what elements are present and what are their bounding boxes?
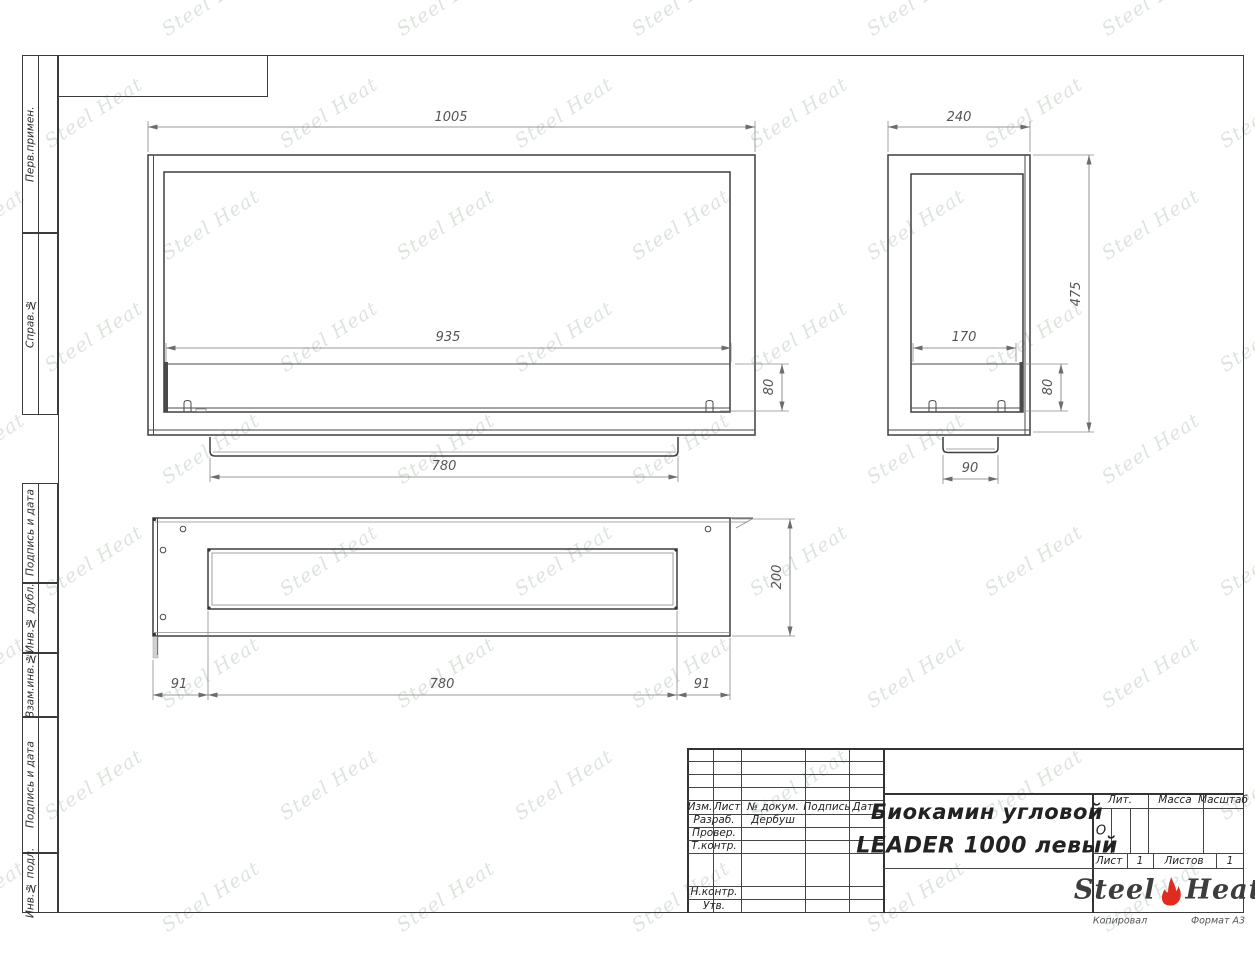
- drawing-title-line1: Биокамин угловой: [871, 800, 1103, 824]
- logo-steel-text: Steel: [1074, 875, 1156, 906]
- mount-hole: [160, 614, 166, 620]
- dim-side-depth: 240: [947, 110, 972, 125]
- tb-tcontrol-label: Т.контр.: [691, 840, 737, 852]
- top-left-stamp-box: [58, 55, 268, 97]
- tb-col-podpis: Подпись: [803, 801, 850, 813]
- tb-col-izm: Изм.: [688, 801, 713, 813]
- side-strip-label: Инв.№ подл.: [23, 854, 38, 912]
- dim-side-opening-depth: 170: [952, 330, 977, 345]
- side-strip-label: Справ.№: [23, 234, 38, 414]
- tb-sheet-label: Лист: [1096, 855, 1123, 867]
- side-strip-cell-inv-dubl: Инв.№ дубл.: [22, 583, 58, 653]
- dim-top-slot-width: 780: [430, 677, 455, 692]
- flame-icon: [1157, 875, 1183, 905]
- top-view: [153, 518, 753, 658]
- top-left-lip: [153, 636, 158, 658]
- dim-top-margin-right: 91: [694, 677, 711, 692]
- dim-front-width: 1005: [434, 110, 467, 125]
- side-strip-cell-inv-podl: Инв.№ подл.: [22, 853, 58, 913]
- side-strip-cell-sprav-no: Справ.№: [22, 233, 58, 415]
- tb-col-list: Лист: [714, 801, 741, 813]
- side-strip-cell-podpis-data-1: Подпись и дата: [22, 483, 58, 583]
- tb-scale-label: Масштаб: [1198, 794, 1248, 806]
- dim-side-burner-height: 80: [1041, 379, 1056, 396]
- dim-front-opening: 935: [436, 330, 461, 345]
- burner-slot: [208, 549, 677, 609]
- dim-top-depth: 200: [770, 565, 785, 590]
- tb-developer-name: Дербуш: [751, 814, 795, 826]
- side-strip-cell-podpis-data-2: Подпись и дата: [22, 717, 58, 853]
- side-front-glass: [1020, 362, 1024, 412]
- burner-clip-right: [706, 401, 713, 413]
- front-tray: [210, 437, 678, 456]
- side-clip-right: [998, 401, 1005, 413]
- side-strip-label: Подпись и дата: [23, 484, 38, 582]
- side-strip-label: Подпись и дата: [23, 718, 38, 852]
- format-note: Формат А3: [1191, 916, 1245, 927]
- dim-front-tray-width: 780: [432, 459, 457, 474]
- mount-hole: [705, 526, 711, 532]
- side-strip-cell-vzam-inv: Взам.инв.№: [22, 653, 58, 717]
- drawing-title-line2: LEADER 1000 левый: [856, 834, 1118, 859]
- logo-heat-text: Heat: [1185, 875, 1255, 906]
- tb-ncontrol-label: Н.контр.: [691, 886, 738, 898]
- side-foot: [943, 437, 998, 453]
- company-logo: Steel Heat: [1074, 875, 1255, 906]
- front-view-dimensions: 1005 935 80 780: [148, 110, 789, 482]
- tb-approver-label: Утв.: [703, 900, 725, 912]
- tb-sheet-value: 1: [1137, 855, 1144, 867]
- side-strip-label: Взам.инв.№: [23, 654, 38, 716]
- tb-mass-label: Масса: [1158, 794, 1191, 806]
- dim-side-foot-width: 90: [962, 461, 979, 476]
- side-strip-label: Перв.примен.: [23, 56, 38, 232]
- side-view: [888, 155, 1030, 453]
- tb-sheets-label: Листов: [1164, 855, 1203, 867]
- front-left-glass: [165, 362, 169, 412]
- copy-note: Копировал: [1093, 916, 1147, 927]
- tb-checker-label: Провер.: [692, 827, 736, 839]
- mount-hole: [160, 547, 166, 553]
- dim-side-height: 475: [1069, 282, 1084, 307]
- side-strip-label: Инв.№ дубл.: [23, 584, 38, 652]
- drawing-sheet: Steel HeatSteel HeatSteel HeatSteel Heat…: [0, 0, 1255, 970]
- side-strip-cell-perv-primen: Перв.примен.: [22, 55, 58, 233]
- tb-lit-label: Лит.: [1108, 794, 1132, 806]
- tb-col-ndokum: № докум.: [747, 801, 799, 813]
- tb-sheets-value: 1: [1227, 855, 1234, 867]
- side-view-dimensions: 240 475 170 80 90: [888, 110, 1094, 484]
- side-clip-left: [929, 401, 936, 413]
- burner-clip-left: [184, 401, 191, 413]
- dim-top-margin-left: 91: [171, 677, 188, 692]
- technical-views: 1005 935 80 780: [0, 0, 1255, 970]
- mount-hole: [180, 526, 186, 532]
- tb-developer-label: Разраб.: [693, 814, 734, 826]
- front-view: [148, 155, 755, 456]
- dim-front-burner-height: 80: [762, 379, 777, 396]
- tb-lit-value: О: [1096, 824, 1106, 839]
